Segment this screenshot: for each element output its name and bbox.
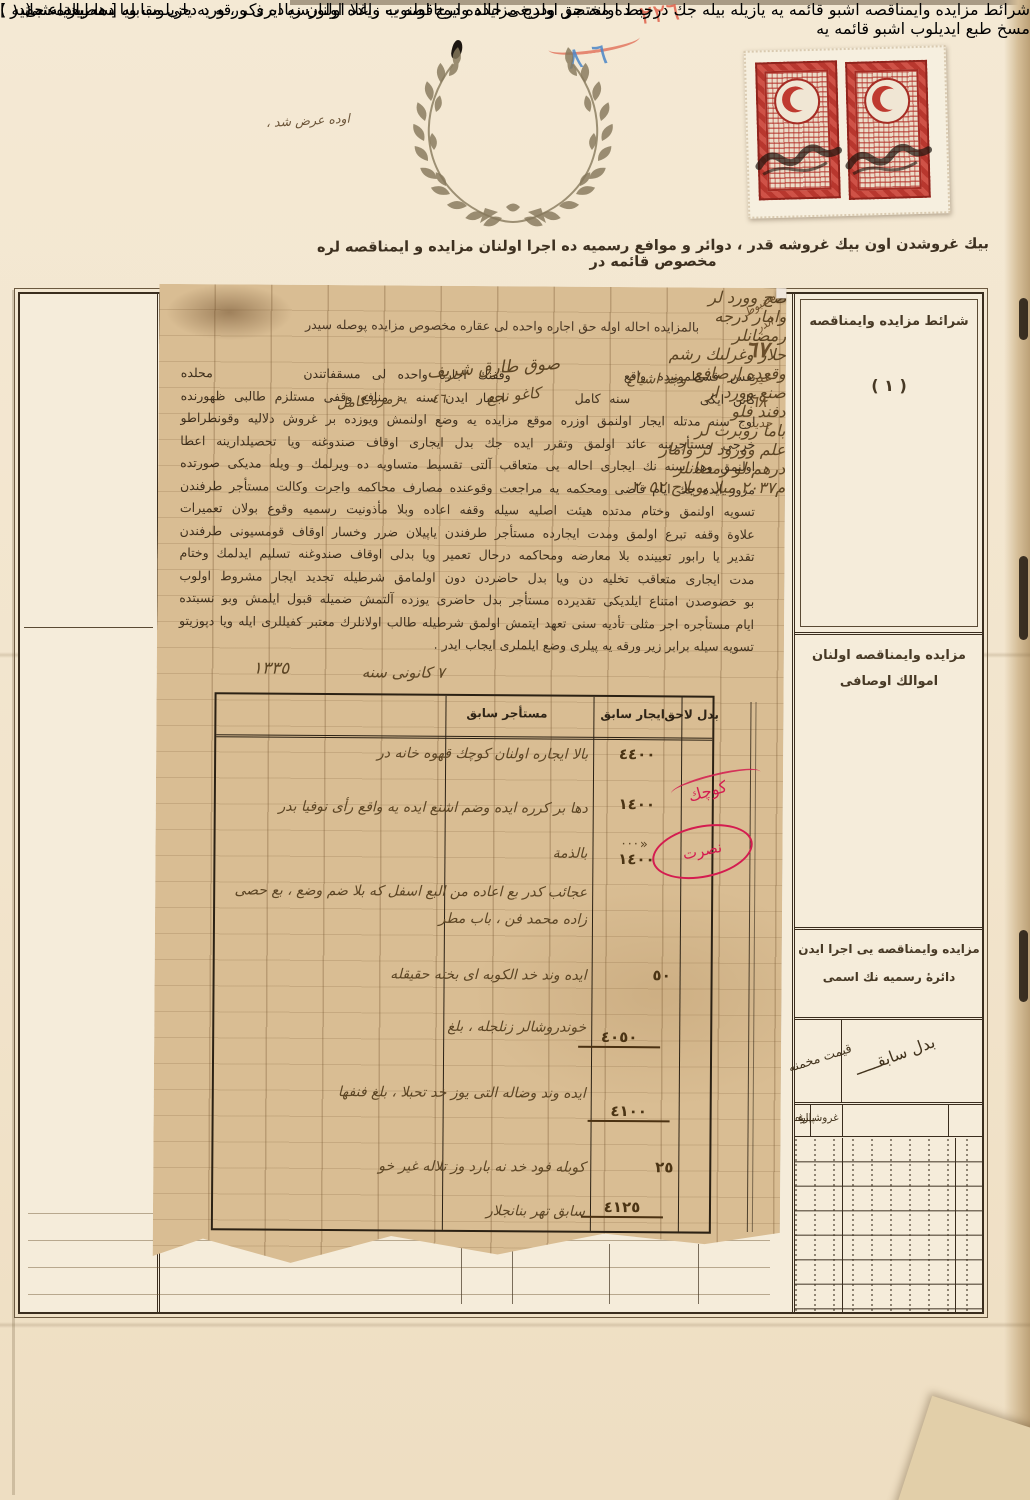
printer-imprint: [ مطبعة عثمانيه ] [0, 0, 117, 19]
black-overprint-scribble [752, 132, 845, 181]
row-amount: ٤٤٠٠ [596, 745, 678, 764]
red-ink-annotation: كوچك نصرت «··· [643, 779, 784, 892]
crescent-icon [782, 86, 809, 113]
handwritten-year: ١٣٣٥ [253, 658, 290, 678]
edge-mark [1019, 556, 1028, 640]
previous-price-label: بدل سابقـــــ [852, 1032, 937, 1079]
cell-divider [948, 1104, 949, 1136]
table-row: خوندروشالر زنلجله ، بلغ ٤٠٥٠ [214, 999, 710, 1072]
form-left-column [20, 294, 160, 1312]
handwritten-insertion: وجد اشياع [627, 371, 687, 387]
grid-divider [842, 1138, 843, 1312]
row-amount: ٤١٢٥ [581, 1198, 663, 1219]
dotted-amount-grid [795, 1138, 983, 1312]
table-row: سابق تهر بنانجلار ٤١٢٥ [213, 1193, 709, 1231]
handwritten-insertion: ٤٦ [432, 392, 446, 407]
row-description: ايده وند وضاله التی يوز خد تحبلا ، بلغ ف… [220, 1069, 586, 1106]
lilac-revenue-stamp [776, 288, 786, 298]
margin-note: ٦٧ [745, 338, 769, 363]
crescent-icon [872, 86, 899, 113]
black-overprint-scribble [842, 132, 935, 181]
cell-inner-frame [800, 299, 978, 627]
red-ink-circled-word: نصرت [647, 816, 757, 887]
row-description: ايده وند خد الكوبه ای بخته حقيقله [221, 955, 587, 988]
fold-crease [0, 1322, 1030, 1328]
paragraph-line: بو خصوصدن امتناع ايلديكی تقديرده مستأجر … [179, 587, 754, 614]
laurel-wreath-emblem [356, 46, 670, 236]
row-amount: ٢٥ [623, 1158, 705, 1177]
column-header-previous-tenant: مستأجر سابق [466, 706, 547, 721]
column-header-previous-rent: ايجار سابق [600, 707, 665, 721]
margin-note: اندر [754, 315, 775, 334]
row-amount: ٤٠٥٠ [578, 1028, 660, 1049]
table-row: كوبله فود خد نه بارد وز تلاله غير خو ٢٥ [213, 1141, 709, 1196]
rent-table-rows: بالا ايجاره اولنان كوچك قهوه خانه در ٤٤٠… [213, 734, 712, 1231]
paragraph-line: ايام مستأجره اجر مثلی تأديه سنی تعهد ايت… [179, 609, 754, 636]
row-amount: ٥٠ [621, 966, 703, 985]
currency-unit-label: غـ [795, 1112, 804, 1124]
column-header-subsequent-price: بدل لاحق [664, 707, 719, 721]
goods-description-title-line2: اموالك اوصافی [795, 674, 983, 689]
form-right-column: شرائط مزايده وايمناقصه ( ١ ) مزايده وايم… [792, 294, 983, 1312]
paragraph-line: اوج سنه مدتله ايجار اولنمق اوزره موقع مز… [180, 407, 755, 434]
cell-divider [24, 627, 153, 628]
cell-divider [795, 1136, 983, 1137]
cell-divider [795, 632, 983, 635]
red-revenue-stamp [755, 60, 841, 200]
paragraph-line: تقدير يا رابور تعيينده بلا معارضه ومحاكم… [179, 542, 754, 569]
currency-units-row: پارهغروشــــــپارهغـ [795, 1104, 983, 1136]
red-revenue-stamp [845, 60, 931, 200]
row-description: كوبله فود خد نه بارد وز تلاله غير خو [219, 1141, 585, 1180]
handwritten-note: اوده عرض شد ، [220, 111, 351, 133]
paragraph-line: اولنمق وهر سنه نك ايجاری احاله یی متعاقب… [180, 452, 755, 479]
stamp-selvage-backing [744, 45, 951, 219]
column-tick [609, 1244, 610, 1304]
cell-divider [842, 1104, 843, 1136]
cell-divider [795, 1017, 983, 1020]
estimated-value-label: قيمت مخمنه [786, 1040, 853, 1075]
conditions-paragraph: نفس قسطمونيده واقع وقفنك اجارهٔ واحده لی… [179, 362, 756, 659]
edge-mark [1019, 298, 1028, 340]
document-title-line: بيك غروشدن اون بيك غروشه قدر ، دوائر و م… [298, 236, 1008, 272]
stamp-scrawl: صح وورد لروامار درجهرمضانلر [159, 284, 786, 345]
table-row: ايده وند خد الكوبه ای بخته حقيقله ٥٠ [214, 955, 710, 1002]
row-description: عجائب كدر بع اعاده من البع اسفل كه بلا ض… [221, 865, 587, 934]
table-row: دها بر كرره ايده وضم اشنع ايده يه واقع ر… [216, 784, 712, 842]
grid-divider [955, 1138, 956, 1312]
table-row: ايده وند وضاله التی يوز خد تحبلا ، بلغ ف… [213, 1069, 709, 1144]
handwritten-date: ٧ كانونی سنه [362, 663, 445, 682]
column-tick [698, 1244, 699, 1304]
goods-description-title-line1: مزايده وايمناقصه اولنان [795, 648, 983, 663]
row-description: بالا ايجاره اولنان كوچك قهوه خانه در [222, 734, 588, 767]
executing-office-line2: دائرهٔ رسميه نك اسمی [795, 970, 983, 984]
cell-divider [795, 927, 983, 930]
conditions-cell-number: ( ١ ) [795, 376, 983, 395]
rent-table-header: بدل لاحق ايجار سابق مستأجر سابق [216, 694, 712, 740]
column-tick [461, 1244, 462, 1304]
edge-mark [1019, 930, 1028, 1002]
glued-auction-slip: بالمزايده احاله اوله حق اجاره واحده لی ع… [153, 284, 787, 1270]
fold-crease [12, 290, 15, 1495]
paragraph-line: تسويه اولنمق وختام مدتده هيئت اصليه سيله… [180, 497, 755, 524]
conditions-cell-title: شرائط مزايده وايمناقصه [795, 314, 983, 329]
paragraph-line: تسويه سيله برابر زير ورقه يه پيلری وضع ا… [179, 632, 754, 659]
executing-office-line1: مزايده وايمناقصه يی اجرا ايدن [795, 942, 983, 956]
crescent-disc [773, 78, 820, 125]
page-right-edge [1004, 0, 1030, 1500]
cell-divider [841, 1019, 842, 1102]
table-row: عجائب كدر بع اعاده من البع اسفل كه بلا ض… [215, 865, 712, 958]
column-tick [512, 1244, 513, 1304]
ink-arrow-mark: «··· [621, 837, 649, 852]
row-description: دها بر كرره ايده وضم اشنع ايده يه واقع ر… [222, 784, 588, 821]
rent-table: بدل لاحق ايجار سابق مستأجر سابق بالا ايج… [211, 692, 715, 1233]
crescent-disc [864, 77, 911, 124]
row-amount: ٤١٠٠ [588, 1102, 670, 1123]
document-scan-page: ٢٢٦ ٦ ٨ اوده عرض شد ، [0, 0, 1030, 1500]
table-row: بالا ايجاره اولنان كوچك قهوه خانه در ٤٤٠… [216, 734, 712, 787]
